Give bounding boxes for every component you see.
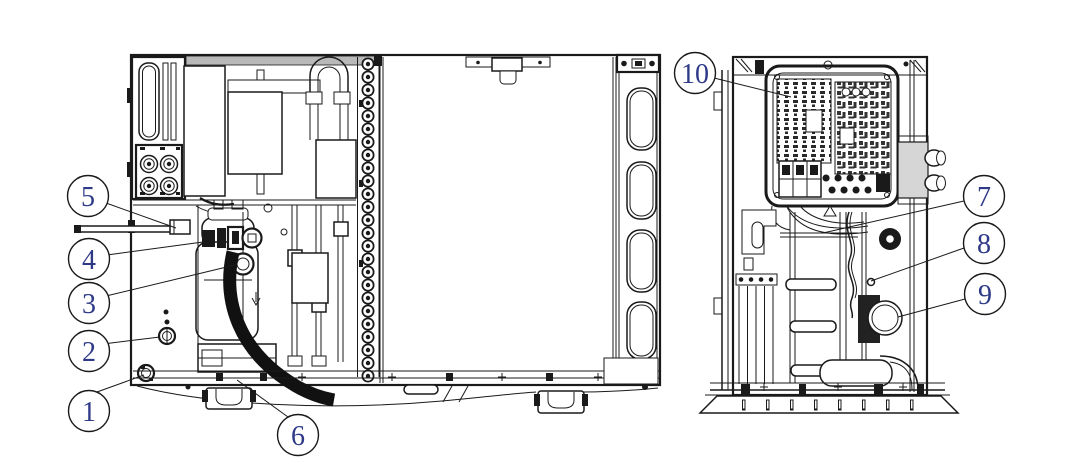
accumulator-component [292, 253, 328, 303]
fan-motor-block [228, 92, 282, 174]
callout-6-number: 6 [291, 421, 305, 452]
pump [868, 301, 902, 335]
top-rail [186, 56, 376, 65]
callout-7: 7 [964, 176, 1005, 217]
callout-9-leader [898, 299, 965, 317]
electrical-box [766, 66, 898, 216]
callout-2: 2 [69, 331, 110, 372]
callout-9: 9 [965, 274, 1006, 315]
u-bend-pipe [306, 57, 350, 140]
callout-3-number: 3 [82, 289, 96, 320]
valve-connection-box [136, 145, 182, 198]
mounting-bracket [742, 210, 776, 270]
skirt-curve [137, 386, 536, 406]
callout-10-number: 10 [681, 59, 709, 90]
control-panel [127, 57, 185, 199]
drain-valve-upper [159, 328, 175, 344]
callout-9-number: 9 [978, 280, 992, 311]
callout-4: 4 [69, 239, 110, 280]
coil-edge-strips [736, 274, 777, 384]
callout-5-number: 5 [81, 182, 95, 213]
figure-canvas: 5 4 3 2 1 6 10 7 [0, 0, 1074, 472]
left-unit-view [74, 54, 660, 413]
drain-valve-lower [138, 365, 154, 381]
left-channel [714, 70, 728, 390]
panel-slot [790, 321, 836, 332]
callout-1-number: 1 [82, 397, 96, 428]
callout-7-number: 7 [977, 182, 991, 213]
pcb-left [777, 79, 831, 163]
callout-8-number: 8 [977, 229, 991, 260]
sensor-clip [868, 279, 875, 286]
lower-piping [264, 204, 348, 366]
terminal-dots [826, 174, 890, 192]
skirt-handle-cutout [404, 385, 438, 394]
relay-block [779, 161, 821, 197]
handle-slot-column [617, 55, 659, 385]
callout-8: 8 [964, 223, 1005, 264]
inner-panel [184, 66, 225, 196]
callout-4-number: 4 [82, 245, 96, 276]
callout-8-leader [871, 248, 964, 281]
callout-6: 6 [278, 415, 319, 456]
callout-3: 3 [69, 283, 110, 324]
foot-left [202, 388, 256, 409]
corner-bracket [604, 358, 658, 384]
callout-1: 1 [69, 391, 110, 432]
receiver-component [316, 140, 356, 198]
base-assembly [700, 383, 958, 413]
right-unit-view [700, 57, 958, 413]
top-handle-bracket [500, 71, 516, 84]
callout-10: 10 [675, 53, 716, 94]
panel-slot [786, 279, 836, 290]
callout-1-leader [97, 375, 144, 392]
coil-fins [358, 57, 380, 377]
drain-pan [700, 396, 958, 413]
callout-2-number: 2 [82, 337, 96, 368]
callout-4-leader [107, 242, 203, 255]
service-valve-assembly [202, 227, 262, 249]
callout-5: 5 [68, 176, 109, 217]
sensor-rod [76, 226, 174, 232]
pipe-union-box [898, 136, 946, 204]
side-panel [380, 57, 616, 385]
foot-right [534, 391, 588, 413]
callout-5-leader [106, 203, 176, 228]
technical-diagram: 5 4 3 2 1 6 10 7 [0, 0, 1074, 472]
